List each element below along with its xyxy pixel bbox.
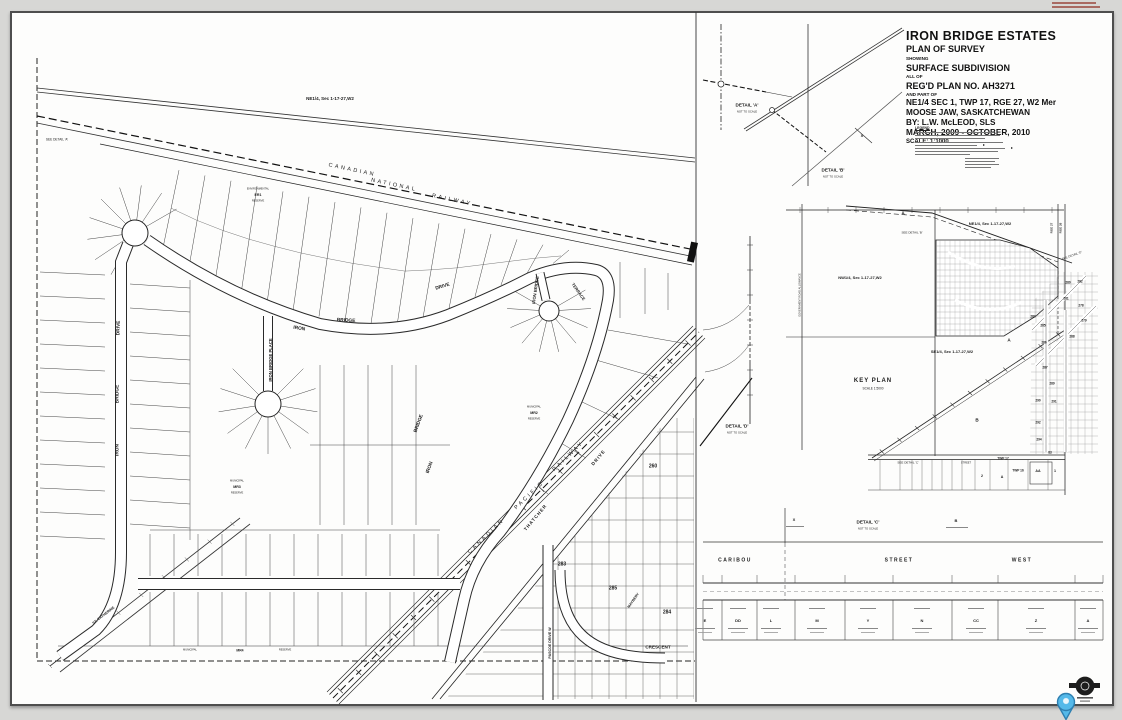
legend-note-line: ▸ — [915, 145, 977, 146]
legend-note-line — [965, 164, 999, 165]
title-block-line: SURFACE SUBDIVISION — [906, 63, 1096, 73]
legend-note-line: ▸ — [915, 148, 1005, 149]
title-block-line: REG'D PLAN NO. AH3271 — [906, 81, 1096, 91]
title-block-line: SHOWING — [906, 56, 1096, 62]
title-block-line: IRON BRIDGE ESTATES — [906, 29, 1096, 43]
title-block-line: MOOSE JAW, SASKATCHEWAN — [906, 108, 1096, 118]
approval-note-line — [1052, 2, 1096, 4]
scanned-survey-plan: CANADIANNATIONALRAILWAYNE1/4, Sec 1-17-2… — [0, 0, 1122, 720]
legend-arrow-icon: ▸ — [983, 143, 985, 147]
title-block-line: ALL OF — [906, 74, 1096, 80]
legend-note-line — [965, 167, 991, 168]
legend-note-line — [915, 151, 998, 152]
map-pin-marker[interactable] — [1058, 694, 1075, 720]
legend-arrow-icon: ▸ — [1011, 146, 1013, 150]
title-block-line: NE1/4 SEC 1, TWP 17, RGE 27, W2 Mer — [906, 98, 1096, 108]
approval-stamp-text — [1052, 2, 1100, 10]
legend-note-line — [915, 135, 1000, 136]
legend-note-line — [915, 154, 970, 155]
title-block-line: PLAN OF SURVEY — [906, 44, 1096, 54]
legend-note-line — [965, 161, 995, 162]
legend-note-line — [915, 132, 993, 133]
legend-title: LEGEND — [915, 126, 1013, 130]
approval-note-line — [1052, 6, 1100, 8]
legend-note-line — [965, 158, 999, 159]
legend-note-line — [915, 138, 985, 139]
legend-note-line — [915, 142, 1003, 143]
legend-block: LEGEND ▸▸ — [915, 126, 1013, 170]
